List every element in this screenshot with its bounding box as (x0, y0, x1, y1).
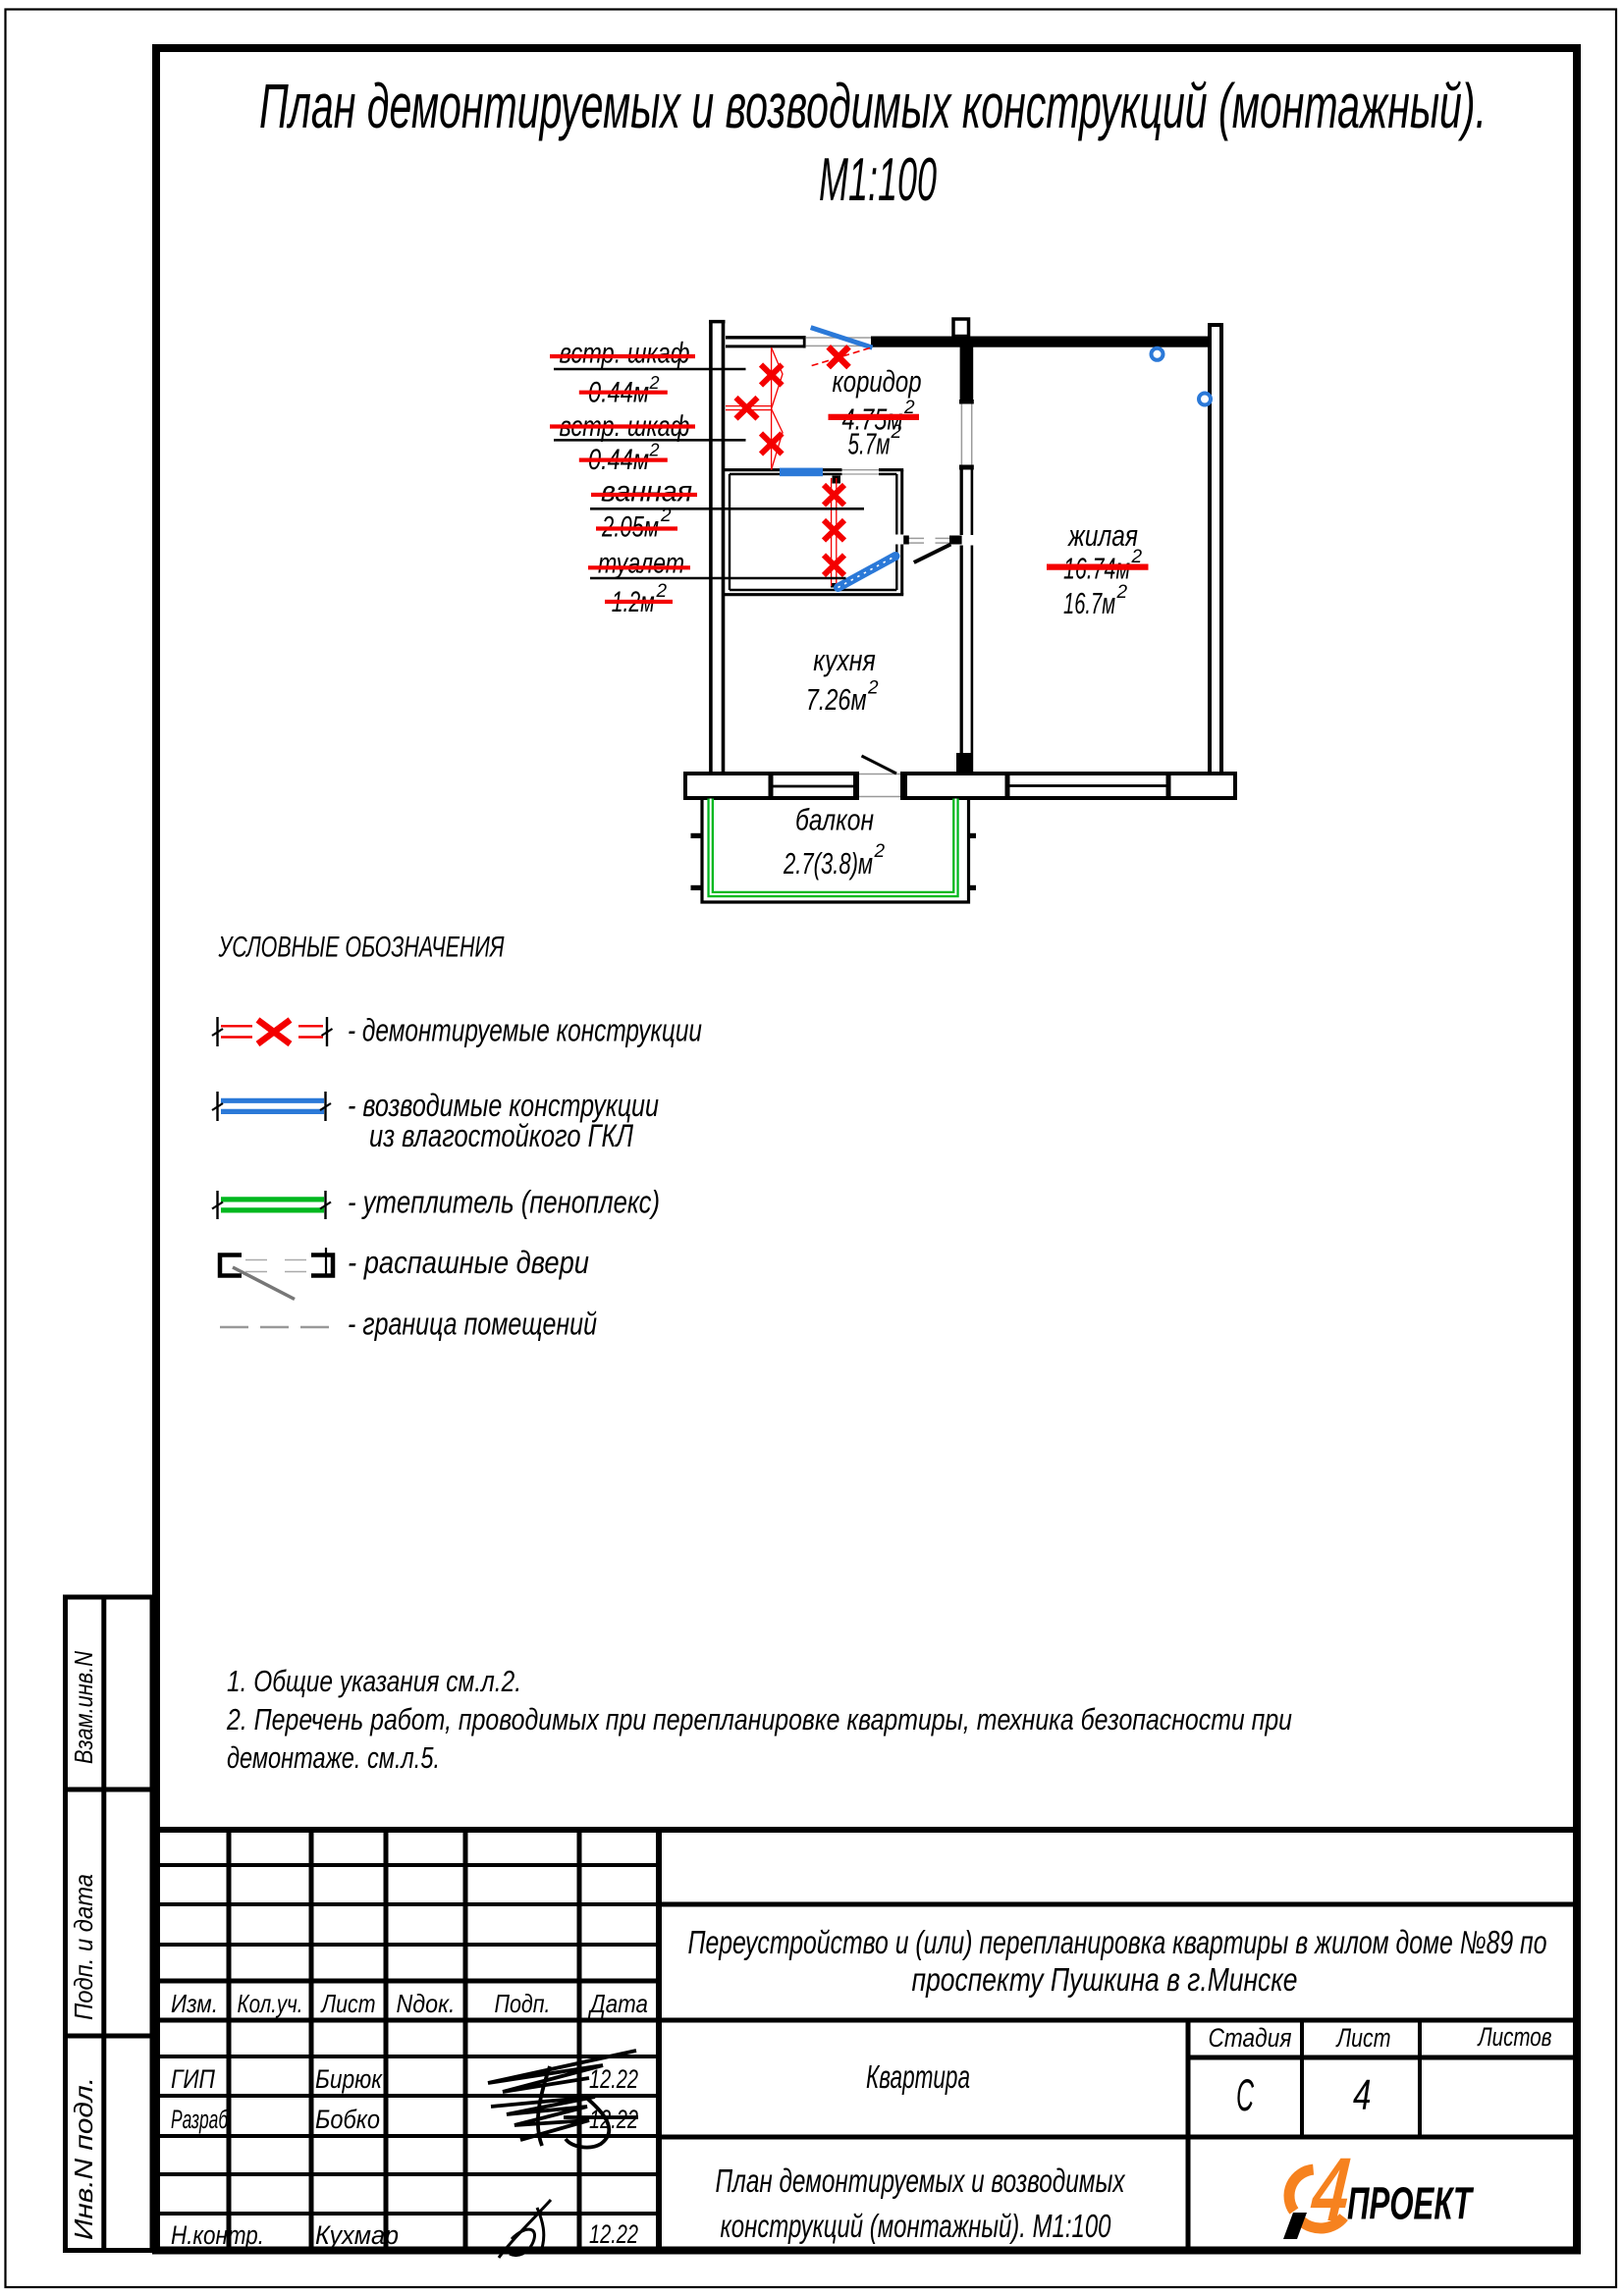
svg-text:Nдок.: Nдок. (397, 1989, 456, 2018)
svg-text:Взам.инв.N: Взам.инв.N (69, 1651, 98, 1764)
svg-text:балкон: балкон (795, 803, 874, 837)
svg-text:5.7м: 5.7м (848, 427, 891, 461)
svg-text:Кол.уч.: Кол.уч. (238, 1989, 303, 2018)
svg-text:План демонтируемых и возвод: План демонтируемых и возводимых конструк… (259, 71, 1487, 141)
svg-text:Разраб.: Разраб. (171, 2105, 233, 2134)
svg-text:2: 2 (649, 373, 660, 393)
svg-text:ГИП: ГИП (171, 2064, 215, 2094)
svg-text:План демонтируемых и возводимы: План демонтируемых и возводимых (716, 2163, 1126, 2199)
svg-text:4: 4 (1353, 2071, 1372, 2119)
svg-text:- демонтируемые конструкции: - демонтируемые конструкции (348, 1013, 702, 1048)
svg-text:Н.контр.: Н.контр. (171, 2220, 264, 2250)
svg-text:Стадия: Стадия (1209, 2023, 1292, 2053)
svg-text:жилая: жилая (1066, 518, 1138, 553)
svg-text:Инв.N подл.: Инв.N подл. (69, 2077, 98, 2240)
svg-text:Изм.: Изм. (171, 1989, 218, 2018)
svg-text:Бобко: Бобко (315, 2105, 380, 2134)
svg-text:Лист: Лист (320, 1989, 376, 2018)
svg-text:- утеплитель (пеноплекс): - утеплитель (пеноплекс) (348, 1185, 660, 1220)
svg-text:конструкций (монтажный). М1:10: конструкций (монтажный). М1:100 (721, 2208, 1111, 2244)
svg-text:встр. шкаф: встр. шкаф (560, 338, 690, 370)
svg-text:2: 2 (649, 441, 660, 460)
svg-text:Переустройство и (или) перепла: Переустройство и (или) перепланировка кв… (688, 1924, 1547, 1960)
svg-text:2: 2 (891, 422, 902, 443)
svg-text:2: 2 (656, 581, 668, 602)
svg-text:2.7(3.8)м: 2.7(3.8)м (783, 846, 873, 881)
svg-text:2: 2 (660, 506, 672, 526)
svg-text:кухня: кухня (813, 643, 876, 677)
svg-text:ванная: ванная (601, 476, 692, 508)
svg-text:Бирюк: Бирюк (315, 2064, 383, 2094)
svg-text:УСЛОВНЫЕ ОБОЗНАЧЕНИЯ: УСЛОВНЫЕ ОБОЗНАЧЕНИЯ (218, 932, 505, 964)
svg-text:туалет: туалет (598, 548, 684, 580)
svg-text:демонтаже. см.л.5.: демонтаже. см.л.5. (227, 1740, 440, 1775)
svg-text:16.7м: 16.7м (1063, 586, 1115, 620)
svg-text:Листов: Листов (1477, 2022, 1552, 2052)
svg-text:Квартира: Квартира (866, 2058, 970, 2095)
svg-text:Подп.: Подп. (495, 1989, 551, 2018)
svg-text:12.22: 12.22 (589, 2219, 638, 2249)
svg-text:Кухмар: Кухмар (315, 2220, 399, 2250)
svg-text:С: С (1236, 2070, 1254, 2120)
svg-text:- распашные двери: - распашные двери (348, 1245, 589, 1280)
svg-text:2. Перечень работ, проводимых: 2. Перечень работ, проводимых при перепл… (226, 1702, 1292, 1736)
svg-text:- граница помещений: - граница помещений (348, 1307, 597, 1342)
svg-text:7.26м: 7.26м (806, 682, 867, 717)
svg-text:2: 2 (867, 678, 879, 699)
svg-text:М1:100: М1:100 (819, 146, 937, 214)
svg-text:из влагостойкого ГКЛ: из влагостойкого ГКЛ (369, 1118, 633, 1153)
svg-text:Подп. и дата: Подп. и дата (69, 1874, 98, 2020)
svg-text:проспекту Пушкина в г.Минске: проспекту Пушкина в г.Минске (912, 1961, 1298, 1998)
svg-text:2: 2 (874, 841, 886, 862)
svg-text:Дата: Дата (587, 1989, 648, 2018)
svg-text:коридор: коридор (833, 364, 922, 399)
svg-text:1. Общие указания см.л.2.: 1. Общие указания см.л.2. (227, 1664, 521, 1698)
svg-text:ПРОЕКТ: ПРОЕКТ (1347, 2178, 1475, 2229)
svg-text:Лист: Лист (1335, 2023, 1391, 2053)
svg-text:2: 2 (1116, 582, 1128, 603)
